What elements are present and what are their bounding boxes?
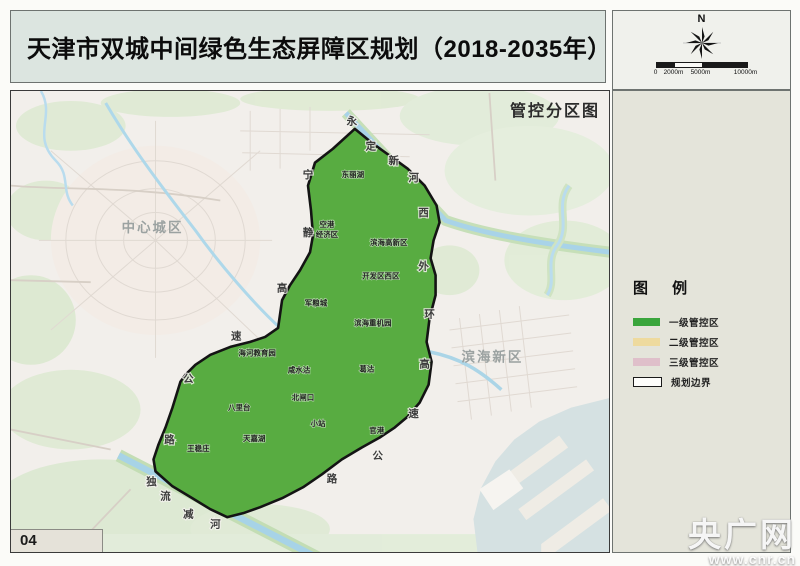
legend-swatch — [633, 338, 660, 346]
map-label: 速 — [231, 329, 242, 342]
map-label: 军粮城 — [305, 298, 328, 308]
map-label: 天嘉湖 — [243, 433, 266, 443]
map-label: 流 — [160, 490, 171, 503]
planning-map-page: 天津市双城中间绿色生态屏障区规划（2018-2035年） N 02000m500… — [0, 0, 800, 566]
scale-bar: 02000m5000m10000m — [656, 62, 748, 78]
map-subtitle: 管控分区图 — [510, 97, 600, 121]
map-label: 王稳庄 — [187, 443, 210, 453]
map-label: 环 — [424, 309, 435, 321]
scale-tick-label: 0 — [654, 69, 658, 76]
map-label: 宁 — [303, 168, 313, 181]
scale-tick-label: 2000m — [664, 69, 684, 76]
map-label: 路 — [327, 472, 338, 485]
map-label: 河 — [408, 172, 419, 184]
map-label: 中心城区 — [122, 219, 184, 235]
map-label: 北闸口 — [292, 392, 314, 402]
map-label: 海河教育园 — [238, 347, 276, 357]
north-panel: N 02000m5000m10000m — [612, 10, 791, 90]
title-bar: 天津市双城中间绿色生态屏障区规划（2018-2035年） — [10, 10, 606, 83]
legend-items: 一级管控区二级管控区三级管控区规划边界 — [633, 315, 790, 389]
map-label: 外 — [417, 260, 429, 273]
legend-item: 一级管控区 — [633, 315, 790, 329]
map-label: 西 — [418, 207, 429, 219]
legend-swatch — [633, 358, 660, 366]
map-label: 定 — [365, 139, 377, 152]
map-label: 高 — [419, 357, 429, 370]
map-label: 滨海重机园 — [354, 317, 392, 327]
watermark-url: www.cnr.cn — [688, 552, 796, 566]
legend-item-label: 二级管控区 — [669, 335, 719, 349]
map-label: 河 — [210, 519, 221, 531]
map-label: 葛沽 — [358, 363, 374, 373]
map-label: 减 — [183, 508, 194, 521]
map-label: 滨海新区 — [462, 348, 524, 364]
legend-swatch — [633, 318, 660, 326]
legend-item-label: 一级管控区 — [669, 315, 719, 329]
map-label: 开发区西区 — [362, 271, 400, 281]
map-label: 速 — [408, 407, 419, 420]
legend-title: 图 例 — [633, 277, 790, 298]
map-label: 官港 — [369, 425, 384, 435]
map-label: 滨海高新区 — [370, 237, 408, 247]
scale-tick-label: 5000m — [691, 69, 711, 76]
map-label: 路 — [164, 433, 175, 446]
map-label: 东丽湖 — [342, 169, 365, 179]
scale-tick-label: 10000m — [734, 69, 758, 76]
map-label: 独 — [145, 475, 157, 488]
legend-item-label: 规划边界 — [671, 375, 711, 389]
legend-panel: 图 例 一级管控区二级管控区三级管控区规划边界 — [612, 90, 791, 553]
map-label: 咸水沽 — [288, 364, 311, 374]
map-label: 公 — [373, 450, 384, 462]
map-area: 东丽湖空港经济区滨海高新区开发区西区军粮城滨海重机园海河教育园咸水沽葛沽八里台北… — [10, 90, 610, 553]
map-label: 空港 — [319, 219, 334, 229]
map-label: 新 — [388, 154, 399, 167]
legend-item: 三级管控区 — [633, 355, 790, 369]
map-label: 高 — [277, 282, 287, 295]
map-label: 八里台 — [227, 402, 251, 412]
page-number: 04 — [11, 529, 103, 552]
legend-swatch — [633, 377, 662, 387]
map-label: 经济区 — [316, 229, 339, 239]
map-label: 小站 — [311, 418, 326, 428]
map-label: 公 — [183, 373, 194, 385]
map-label: 永 — [346, 114, 358, 127]
map-canvas: 东丽湖空港经济区滨海高新区开发区西区军粮城滨海重机园海河教育园咸水沽葛沽八里台北… — [11, 91, 609, 552]
legend-item-label: 三级管控区 — [669, 355, 719, 369]
legend-item: 二级管控区 — [633, 335, 790, 349]
map-label: 静 — [303, 226, 314, 239]
compass-rose-icon — [681, 23, 723, 63]
page-title: 天津市双城中间绿色生态屏障区规划（2018-2035年） — [11, 29, 605, 64]
legend-item: 规划边界 — [633, 375, 790, 389]
scale-bar-segments — [656, 62, 748, 68]
